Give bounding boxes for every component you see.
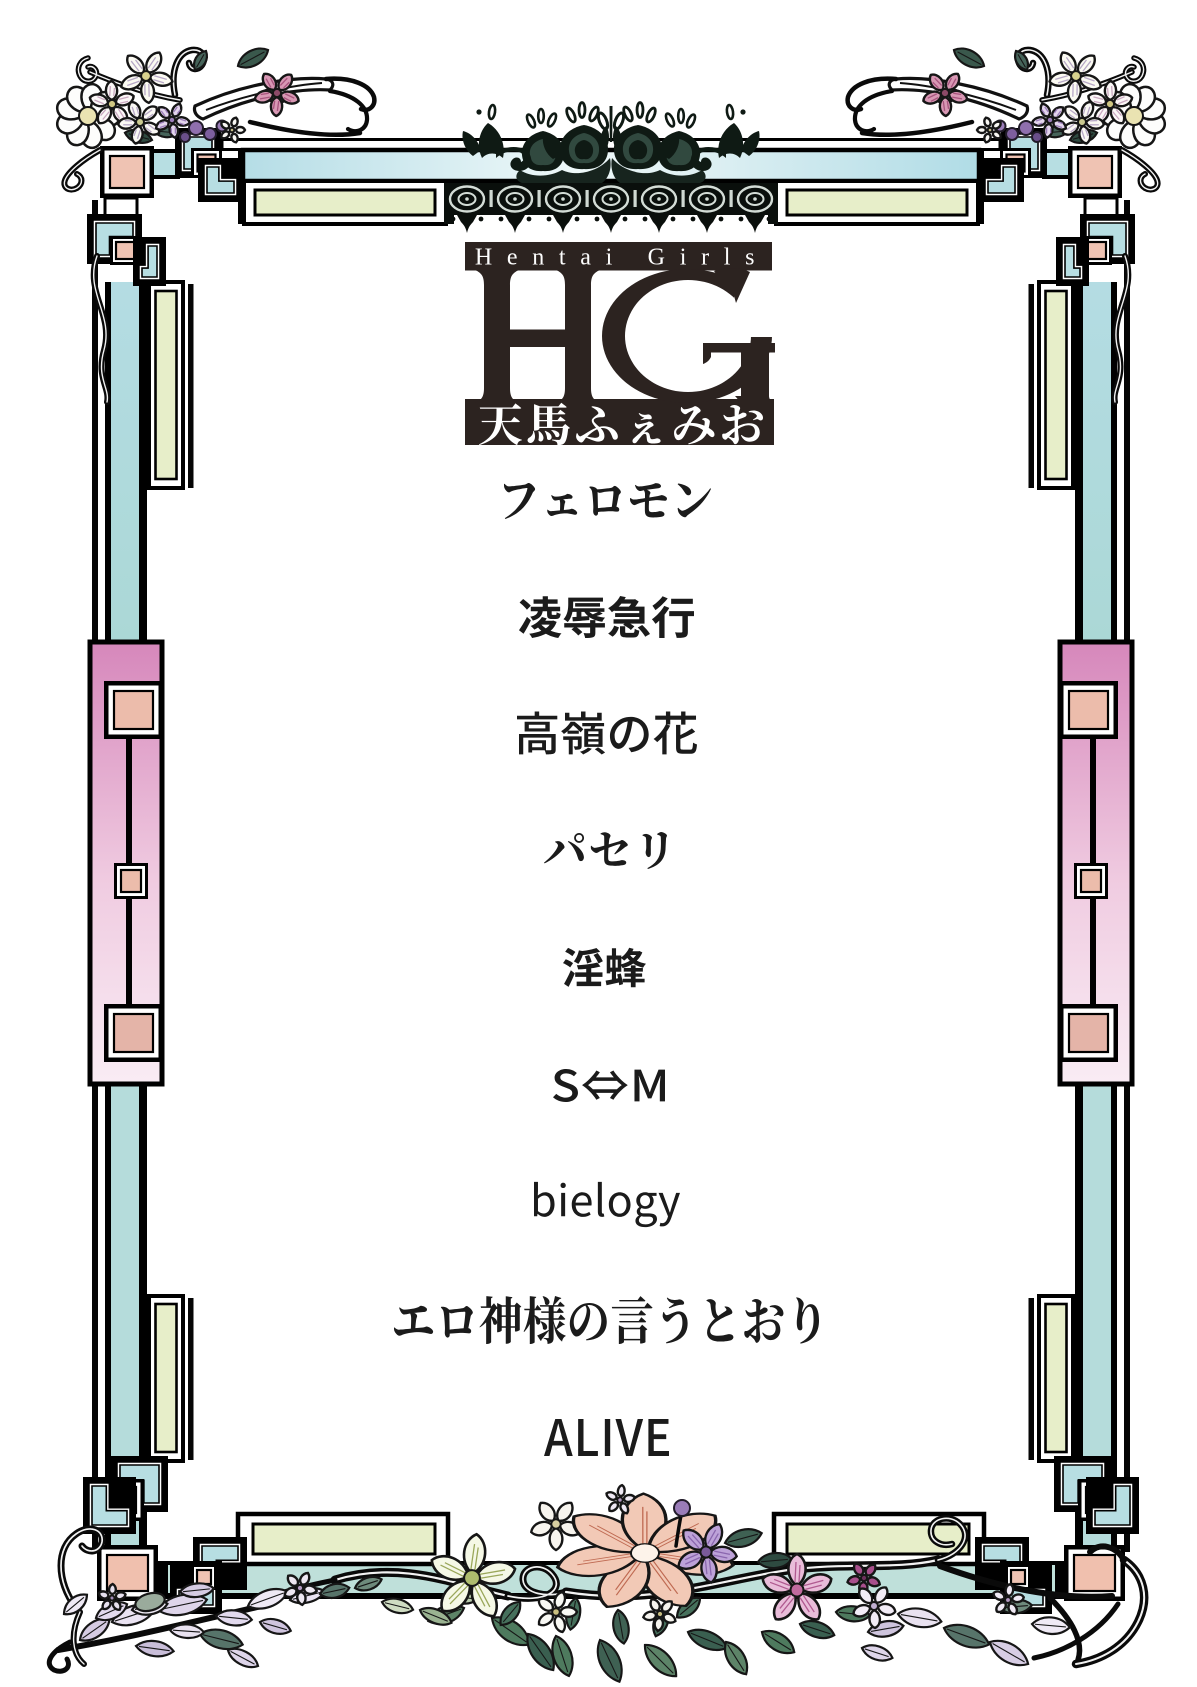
svg-text:Hentai Girls: Hentai Girls xyxy=(475,245,769,271)
